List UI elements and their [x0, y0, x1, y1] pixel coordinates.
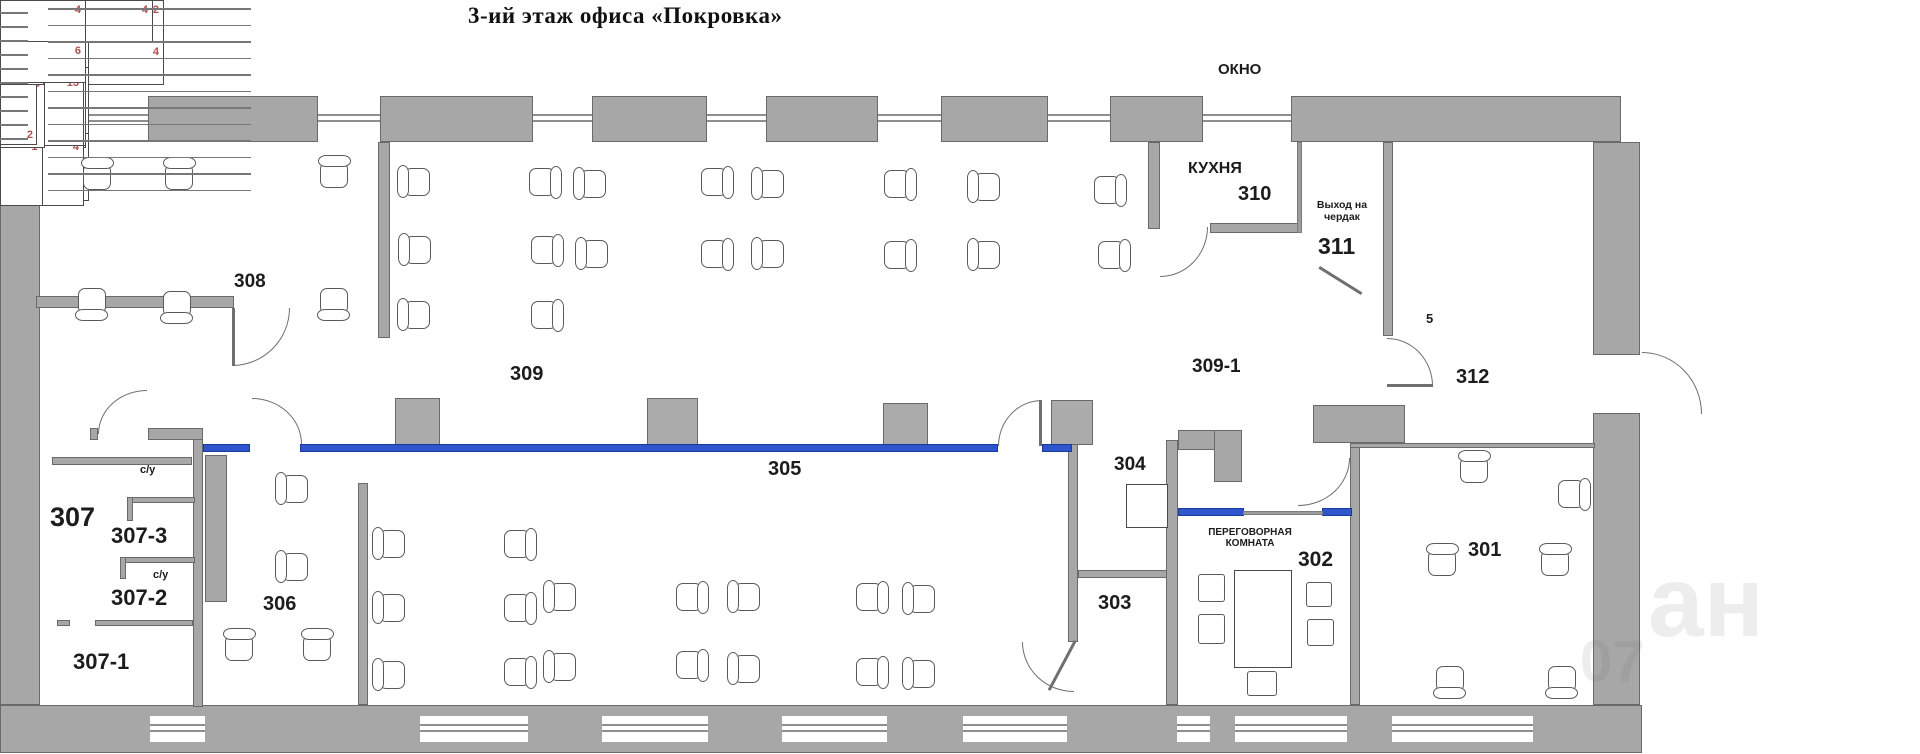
door-leaf: [1039, 400, 1042, 446]
chair-icon: [398, 233, 432, 267]
chair-icon: [675, 648, 709, 682]
chair-icon: [967, 170, 1001, 204]
floor-plan: 3-ий этаж офиса «Покровка» 1234561425367…: [0, 0, 1920, 754]
chair-icon: [751, 167, 785, 201]
wall: [1214, 430, 1242, 482]
door-arc: [998, 400, 1042, 446]
wall: [1350, 447, 1360, 705]
chair-icon: [855, 655, 889, 689]
chair-icon: [317, 155, 351, 189]
window: [84, 106, 148, 132]
chair-icon: [543, 650, 577, 684]
room-label-302: 302: [1298, 548, 1333, 572]
door-arc: [1022, 642, 1074, 692]
wall: [148, 428, 203, 440]
chair-icon: [275, 472, 309, 506]
room-label-okno: ОКНО: [1218, 62, 1261, 79]
room-label-309: 309: [510, 363, 543, 385]
window: [707, 106, 766, 132]
room-label-wc-2: с/у: [153, 569, 168, 581]
stair-tread: [48, 58, 251, 60]
window: [1177, 716, 1210, 742]
chair-icon: [1433, 665, 1467, 699]
wall: [1593, 413, 1640, 705]
stair-tread: [48, 124, 251, 126]
wall: [193, 430, 203, 707]
stair-rung: [0, 26, 28, 28]
chair-icon: [751, 237, 785, 271]
chair-icon: [75, 287, 109, 321]
wall: [380, 96, 533, 142]
room-label-301: 301: [1468, 539, 1501, 561]
chair-icon: [727, 652, 761, 686]
window: [602, 716, 708, 742]
chair-icon: [1425, 543, 1459, 577]
chair-icon: [160, 290, 194, 324]
desk-cell: 4: [0, 0, 86, 42]
desk-number: 4: [75, 5, 81, 16]
wall: [52, 457, 192, 465]
chair-icon: [700, 237, 734, 271]
room-label-312: 312: [1456, 366, 1489, 388]
wall: [120, 557, 195, 563]
window: [420, 716, 528, 742]
plan-canvas: 1234561425367981011131214151716183625148…: [0, 0, 1920, 754]
stair-rung: [0, 110, 28, 112]
wall: [358, 483, 368, 705]
glass-partition: [1297, 142, 1302, 233]
chair-icon: [503, 527, 537, 561]
room-label-309-1: 309-1: [1192, 356, 1241, 377]
blue-wall: [1322, 508, 1352, 516]
stair-tread: [48, 8, 251, 10]
stair-rung: [0, 68, 28, 70]
door-arc: [1642, 352, 1702, 414]
blue-wall: [203, 444, 250, 452]
door-arc: [1387, 338, 1433, 386]
desk-cell: 4: [82, 42, 165, 85]
stair-rung: [0, 138, 28, 140]
window: [150, 716, 205, 742]
stair-tread: [48, 157, 251, 159]
wall: [1210, 223, 1302, 233]
blue-wall: [300, 444, 998, 452]
room-label-305: 305: [768, 458, 801, 480]
wall: [1068, 443, 1078, 642]
room-label-304: 304: [1114, 454, 1146, 475]
column-pillar: [1051, 400, 1093, 445]
chair-icon: [1557, 477, 1591, 511]
room-label-307: 307: [50, 502, 95, 532]
column-pillar: [395, 398, 440, 445]
chair-icon: [967, 238, 1001, 272]
door-arc: [98, 390, 147, 434]
door-arc: [252, 398, 302, 444]
desk-cell: 4: [76, 0, 153, 42]
desk-number: 4: [142, 5, 148, 16]
window: [1392, 716, 1533, 742]
wall: [1148, 142, 1160, 229]
chair-icon: [855, 580, 889, 614]
door-arc: [1160, 227, 1208, 277]
chair-icon: [575, 237, 609, 271]
guest-chair-icon: [1306, 582, 1332, 607]
chair-icon: [675, 580, 709, 614]
room-label-311: 311: [1318, 234, 1355, 260]
chair-icon: [372, 591, 406, 625]
wall: [378, 142, 390, 338]
chair-icon: [1538, 543, 1572, 577]
chair-icon: [503, 655, 537, 689]
stair-rung: [0, 124, 28, 126]
wall: [1291, 96, 1621, 142]
chair-icon: [1457, 450, 1491, 484]
chair-icon: [397, 165, 431, 199]
desk-number: 2: [153, 5, 159, 16]
guest-chair-icon: [1198, 614, 1225, 644]
chair-icon: [503, 591, 537, 625]
guest-chair-icon: [1307, 619, 1334, 646]
stair-rung: [0, 12, 28, 14]
chair-icon: [530, 298, 564, 332]
wall: [1110, 96, 1203, 142]
room-label-306: 306: [263, 593, 296, 615]
wall: [57, 620, 70, 626]
blue-wall: [1042, 444, 1072, 452]
wall: [95, 620, 193, 626]
wall: [1383, 142, 1393, 336]
wall: [1350, 443, 1595, 448]
wall: [1313, 405, 1405, 443]
desk-cell: 4: [42, 137, 85, 206]
desk-cell: 6: [0, 41, 86, 83]
chair-icon: [372, 658, 406, 692]
chair-icon: [883, 238, 917, 272]
window: [1048, 106, 1110, 132]
wall: [127, 497, 195, 503]
wall: [941, 96, 1048, 142]
window: [318, 106, 380, 132]
wall: [592, 96, 707, 142]
wall: [1593, 142, 1640, 355]
room-label-wc-1: с/у: [140, 464, 155, 476]
column-pillar: [883, 403, 928, 445]
door-leaf: [232, 308, 235, 366]
guest-chair-icon: [1247, 671, 1277, 696]
wall: [90, 428, 98, 440]
window: [782, 716, 887, 742]
wall: [1078, 570, 1170, 578]
room-label-kitchen: КУХНЯ: [1188, 160, 1242, 178]
stair-tread: [48, 107, 251, 109]
room-label-303: 303: [1098, 592, 1131, 614]
wall: [127, 497, 133, 521]
chair-icon: [222, 628, 256, 662]
chair-icon: [902, 582, 936, 616]
desk-cell: 13: [42, 73, 85, 147]
chair-icon: [1097, 238, 1131, 272]
room-label-307-3: 307-3: [111, 524, 167, 549]
stair-tread: [48, 25, 251, 27]
chair-icon: [902, 657, 936, 691]
room-label-307-2: 307-2: [111, 586, 167, 611]
chair-icon: [700, 165, 734, 199]
guest-chair-icon: [1198, 574, 1225, 602]
sliding-door: [1243, 511, 1323, 515]
chair-icon: [543, 580, 577, 614]
wall: [1166, 440, 1178, 705]
column-pillar: [647, 398, 698, 445]
chair-icon: [530, 233, 564, 267]
wall: [120, 557, 126, 579]
wall: [766, 96, 878, 142]
stair-rung: [0, 40, 28, 42]
meeting-table: [1234, 570, 1292, 668]
window: [878, 106, 941, 132]
chair-icon: [573, 167, 607, 201]
chair-icon: [528, 165, 562, 199]
chair-icon: [1093, 173, 1127, 207]
wall: [36, 296, 234, 308]
window: [533, 106, 592, 132]
stair-rung: [0, 82, 28, 84]
chair-icon: [1545, 665, 1579, 699]
chair-icon: [317, 287, 351, 321]
door-leaf: [1318, 266, 1362, 295]
chair-icon: [372, 527, 406, 561]
room-label-attic: Выход на чердак: [1310, 200, 1374, 224]
room-label-310: 310: [1238, 183, 1271, 205]
wall: [148, 96, 318, 142]
watermark: ан: [1648, 545, 1764, 660]
blue-wall: [1178, 508, 1244, 516]
chair-icon: [397, 298, 431, 332]
door-leaf: [1387, 384, 1433, 387]
door-arc: [1298, 458, 1350, 506]
stair-tread: [48, 140, 251, 142]
window: [1203, 106, 1291, 132]
stair-tread: [48, 173, 251, 175]
window: [1235, 716, 1347, 742]
room-label-308: 308: [234, 271, 266, 292]
chair-icon: [275, 550, 309, 584]
chair-icon: [883, 167, 917, 201]
desk-number: 4: [153, 47, 159, 58]
chair-icon: [727, 580, 761, 614]
stair-rung: [0, 54, 28, 56]
stair-tread: [48, 91, 251, 93]
room-label-meeting: ПЕРЕГОВОРНАЯ КОМНАТА: [1196, 527, 1304, 549]
desk-304: [1126, 484, 1168, 528]
door-arc: [232, 308, 290, 366]
room-label-307-1: 307-1: [73, 650, 129, 675]
stair-tread: [48, 74, 251, 76]
chair-icon: [300, 628, 334, 662]
stairs-number: 5: [1426, 312, 1433, 327]
stair-rung: [0, 96, 28, 98]
stair-tread: [48, 190, 251, 192]
stair-tread: [48, 41, 251, 43]
wall: [205, 455, 227, 602]
window: [963, 716, 1067, 742]
desk-number: 6: [75, 46, 81, 57]
